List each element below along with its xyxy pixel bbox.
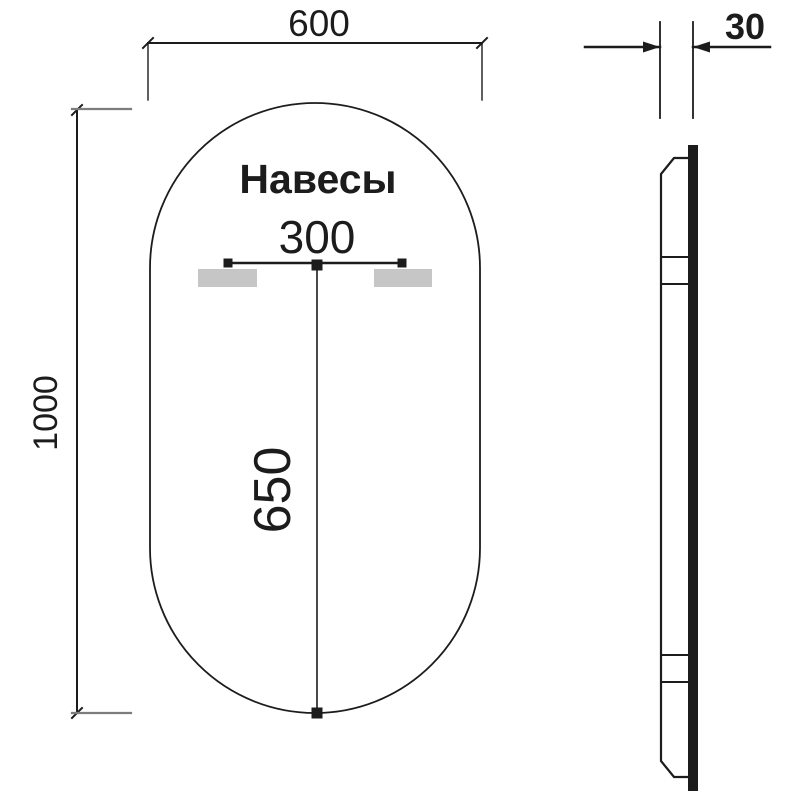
mount-drop-marker-bottom xyxy=(312,708,323,719)
front-view-linework xyxy=(72,38,487,718)
depth-arrow-left-icon xyxy=(643,42,660,53)
drawing-canvas: 600 1000 Навесы 300 650 30 xyxy=(0,0,800,800)
hangers-label: Навесы xyxy=(239,156,396,202)
width-dimension-label: 600 xyxy=(288,3,350,44)
hanger-spacing-marker-left xyxy=(224,259,233,268)
hanger-plate-right xyxy=(374,269,432,287)
depth-arrow-right-icon xyxy=(693,42,710,53)
depth-dimension-label: 30 xyxy=(725,6,765,47)
side-view-fills xyxy=(643,42,710,792)
height-extension-lines xyxy=(72,109,131,713)
back-panel-outline xyxy=(661,158,688,777)
height-dimension-label: 1000 xyxy=(27,375,65,451)
hanger-spacing-label: 300 xyxy=(279,211,356,263)
hanger-plates xyxy=(198,269,432,287)
hanger-spacing-marker-right xyxy=(398,259,407,268)
technical-drawing: 600 1000 Навесы 300 650 30 xyxy=(0,0,800,800)
labels: 600 1000 Навесы 300 650 30 xyxy=(27,3,765,533)
side-view-linework xyxy=(585,22,770,777)
hanger-plate-left xyxy=(198,269,257,287)
mount-drop-label: 650 xyxy=(244,447,302,534)
mirror-glass-edge xyxy=(688,145,698,791)
